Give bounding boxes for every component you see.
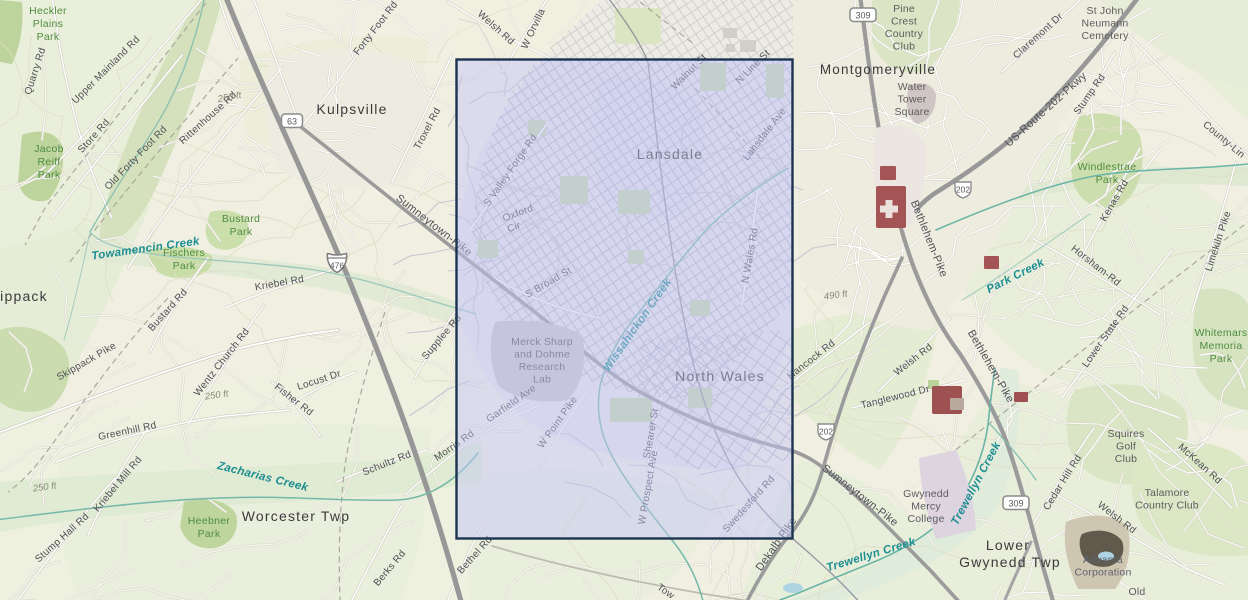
svg-text:Heebner: Heebner [188, 515, 231, 527]
svg-text:Corporation: Corporation [1074, 567, 1131, 579]
svg-text:Country: Country [885, 28, 924, 40]
svg-text:63: 63 [287, 117, 297, 127]
svg-text:Jacob: Jacob [34, 143, 64, 155]
svg-text:Mercy: Mercy [911, 501, 941, 513]
svg-text:Kulpsville: Kulpsville [316, 101, 387, 117]
svg-text:Cemetery: Cemetery [1081, 30, 1129, 42]
svg-text:St John: St John [1086, 5, 1123, 17]
svg-text:Crest: Crest [891, 16, 917, 28]
svg-text:Squires: Squires [1107, 428, 1144, 440]
svg-text:Worcester Twp: Worcester Twp [242, 508, 350, 524]
svg-text:Neumann: Neumann [1082, 18, 1129, 30]
svg-text:Tower: Tower [897, 94, 926, 106]
svg-text:Club: Club [893, 41, 915, 53]
svg-text:Golf: Golf [1116, 441, 1136, 453]
svg-text:Club: Club [1115, 453, 1137, 465]
svg-text:309: 309 [1008, 499, 1023, 509]
svg-text:College: College [907, 513, 944, 525]
svg-text:Water: Water [898, 81, 927, 93]
svg-text:Park: Park [1210, 353, 1233, 365]
svg-text:Talamore: Talamore [1145, 487, 1190, 499]
svg-text:Park: Park [198, 528, 221, 540]
svg-text:Advanta: Advanta [1083, 554, 1123, 566]
svg-text:Park: Park [38, 169, 61, 181]
svg-text:Whitemars: Whitemars [1195, 327, 1248, 339]
svg-text:Lower: Lower [986, 537, 1030, 553]
svg-text:Plains: Plains [33, 18, 63, 30]
svg-text:Memoria: Memoria [1200, 340, 1243, 352]
svg-text:ippack: ippack [0, 288, 48, 304]
svg-text:202: 202 [956, 185, 970, 195]
svg-text:Montgomeryville: Montgomeryville [820, 62, 936, 77]
svg-text:Park: Park [37, 31, 60, 43]
svg-text:Pine: Pine [893, 3, 915, 15]
svg-text:Gwynedd: Gwynedd [903, 488, 949, 500]
svg-text:Old: Old [1129, 586, 1146, 598]
svg-text:Bustard: Bustard [222, 213, 260, 225]
svg-text:Gwynedd Twp: Gwynedd Twp [959, 554, 1061, 570]
svg-text:Windlestrae: Windlestrae [1078, 161, 1137, 173]
svg-text:Park: Park [1096, 174, 1119, 186]
svg-text:Country Club: Country Club [1135, 500, 1199, 512]
svg-text:Park: Park [173, 260, 196, 272]
svg-text:Park: Park [230, 226, 253, 238]
svg-text:Heckler: Heckler [29, 5, 67, 17]
svg-text:476: 476 [330, 261, 344, 271]
svg-text:202: 202 [819, 427, 833, 437]
svg-text:Reiff: Reiff [38, 156, 61, 168]
svg-text:Square: Square [894, 106, 929, 118]
svg-text:309: 309 [855, 11, 870, 21]
